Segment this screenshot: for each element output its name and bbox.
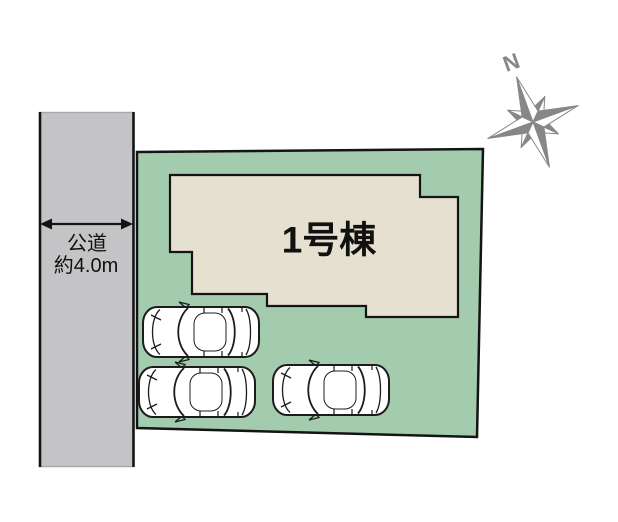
car-icon [273, 360, 389, 420]
road-name-label: 公道 [67, 232, 107, 255]
north-label: N [500, 48, 523, 77]
road-surface [39, 112, 134, 467]
road-area [39, 112, 134, 467]
site-plan-drawing: 1号棟 公道 約4.0m [0, 0, 618, 522]
road-width-label: 約4.0m [54, 254, 118, 277]
building-1-label: 1号棟 [282, 220, 378, 261]
site-plan-canvas: 1号棟 公道 約4.0m [0, 0, 618, 522]
car-icon [139, 362, 255, 422]
car-icon [143, 302, 259, 362]
